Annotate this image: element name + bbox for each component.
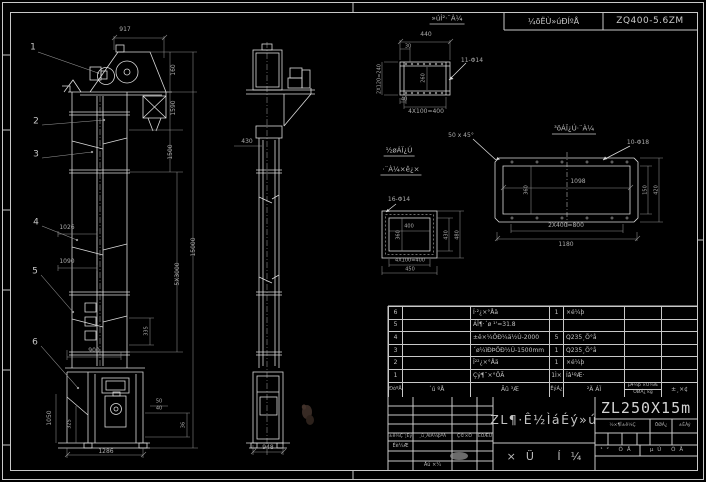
bom-cell-qty: 1 [549,344,563,357]
ink-smudge [302,404,314,425]
bom-header-code: ´ú ºÅ [402,382,470,397]
bom-cell-qty: 5 [549,331,563,344]
stage-label: ½×¶Î±ê¼Ç [595,419,650,433]
bom-cell-seq: 4 [388,331,402,344]
dim-label: 1026 [59,225,74,231]
sheet-no-label: µÚ ÕÅ [640,445,697,456]
signature-smudge [450,452,468,460]
dim-label: 1098 [570,179,585,185]
detail-flange-long [473,139,638,228]
bom-cell-remark [661,331,697,344]
design-label: Éè¼Æ [388,441,413,451]
bom-cell-code [402,319,470,332]
header-model: ZQ400-5.6ZM [603,12,697,30]
bom-cell-qty: 1 [549,306,563,319]
dim-label: 40 [156,407,162,412]
dim-label: 50 x 45° [448,133,474,139]
bom-cell-material: Íâ¹ºÆ· [563,369,624,382]
bom-cell-weight [624,344,661,357]
dim-label: 1286 [98,449,113,455]
bom-cell-qty [549,319,563,332]
bom-header-weight-bottom: ÖØÁ¿ kg [625,389,661,397]
bom-cell-name: ´ø¼ìÐÞÖÐ½Ú-1500mm [470,344,549,357]
dim-label: 260 [422,73,427,83]
bom-cell-remark [661,344,697,357]
bom-cell-name: ÁÏ¶·´ø ¹'=31.8 [470,319,549,332]
dim-label: 948 [262,445,273,451]
dim-label: 15000 [191,237,197,256]
bom-cell-name: Î²²¿×°Åä [470,356,549,369]
parts-list: 6Í·²¿×°Åä1×é¼þ5ÁÏ¶·´ø ¹'=31.84±ê×¼ÖÐ¼ä½Ú… [388,306,697,397]
dim-label: 360 [525,185,530,195]
weight-label: ÖØÁ¿ [650,419,672,433]
callout-number: 2 [33,118,39,127]
bom-cell-material: Q235¸Ö°å [563,344,624,357]
dim-label: 420 [655,185,660,195]
dim-label: 430 [445,230,450,240]
dim-label: 1180 [558,242,573,248]
bom-cell-remark [661,369,697,382]
dim-label: 335 [145,326,150,336]
bom-cell-seq: 1 [388,369,402,382]
dim-label: 450 [405,268,415,273]
dim-label: 900 [88,348,99,354]
dim-label: 10-Φ18 [627,140,649,146]
bom-cell-code [402,369,470,382]
bom-header-weight-top: µ¥¼þ ×Ü¼Æ [625,383,661,390]
rev-header-mark: ±ê¼Ç´¦Êý [388,433,413,441]
detail-title: ³öÁÏ¿Ú·¨À¼ [552,126,596,135]
bom-cell-name: ±ê×¼ÖÐ¼ä½Ú-2000 [470,331,549,344]
callout-number: 3 [33,151,39,160]
dim-label: 5X3000 [175,262,181,285]
detail-title: »úÍ²·¨À¼ [430,16,465,25]
model-number: ZL250X15m [595,397,697,419]
bom-cell-weight [624,331,661,344]
bom-cell-seq: 5 [388,319,402,332]
dim-label: 4X100=400 [408,109,444,115]
cad-sheet: ¼õËÙ»úÐÍºÅ ZQ400-5.6ZM 12345691716015901… [0,0,706,482]
bom-cell-qty: 1 [549,356,563,369]
centerlines [100,42,267,456]
bom-cell-material: ×é¼þ [563,356,624,369]
side-view [246,44,315,448]
callout-number: 6 [32,339,38,348]
rev-header-docno: ¸ü¸ÄÎÄ¼þºÅ [413,433,452,441]
callout-number: 5 [32,268,38,277]
dim-label: 150 [644,185,649,195]
dim-label: 36 [182,422,187,428]
dim-label: 2X400=800 [548,223,584,229]
bom-cell-name: Çý¶¯×°ÖÃ [470,369,549,382]
dim-label: 1050 [47,410,53,425]
bom-cell-code [402,331,470,344]
bom-cell-weight [624,319,661,332]
dim-label: 430 [241,139,252,145]
detail-title: ½øÁÏ¿Ú [384,148,415,157]
bom-cell-code [402,344,470,357]
bom-cell-remark [661,319,697,332]
bom-cell-name: Í·²¿×°Åä [470,306,549,319]
bom-cell-material: Q235¸Ö°å [563,331,624,344]
bom-header-seq: ÐòºÅ [388,382,402,397]
dim-label: 325 [68,419,73,429]
callout-number: 4 [33,219,39,228]
bom-header-qty: ÊýÁ¿ [549,382,563,397]
dim-label: 917 [119,27,130,33]
dim-label: 4X100=400 [395,259,425,264]
bom-cell-remark [661,306,697,319]
bom-header-weight: µ¥¼þ ×Ü¼ÆÖØÁ¿ kg [624,382,661,397]
dim-label: 440 [420,32,431,38]
drawing-subtitle: ×Ü Í¼ [493,443,595,470]
dim-label: 16-Φ14 [388,197,410,203]
bom-cell-seq: 2 [388,356,402,369]
bom-cell-weight [624,306,661,319]
dim-label: 1090 [59,259,74,265]
bom-cell-material [563,319,624,332]
dim-label: 30 [405,45,411,50]
dim-label: 160 [171,64,177,75]
bom-cell-remark [661,356,697,369]
dim-label: 50 [156,400,162,405]
bom-cell-material: ×é¼þ [563,306,624,319]
bom-cell-code [402,306,470,319]
dim-label: 360 [397,230,402,240]
bom-cell-code [402,356,470,369]
bom-cell-weight [624,356,661,369]
drawing-title: ZL¶·Ê½ÌáÉý»ú [493,397,595,443]
dim-label: 2X120=240 [378,64,383,94]
sheet-total-label: ¹² ÕÅ [595,445,640,456]
bom-cell-weight [624,369,661,382]
dim-label: 480 [456,230,461,240]
scale-label: ±ÈÀý [672,419,697,433]
dim-label: 400 [404,225,414,230]
rev-header-sign: Ç©×Ö [452,433,477,441]
dim-label: 40 [401,98,407,103]
leader-lines [38,52,105,389]
dim-label: 1590 [171,100,177,115]
bom-cell-seq: 3 [388,344,402,357]
approve-label: Åú ×¼ [413,461,452,470]
front-view [58,45,172,448]
bom-header-remark: ±¸×¢ [661,382,697,397]
rev-header-date: ÈÕÆÚ [477,433,493,441]
bom-header-name: Ãû ³Æ [470,382,549,397]
dim-label: 1500 [168,144,174,159]
detail-flange-top [400,62,466,95]
dim-label: 11-Φ14 [461,58,483,64]
bom-header-material: ²Ä ÁÏ [563,382,624,397]
callout-number: 1 [30,44,36,53]
bom-cell-qty: 1Ì× [549,369,563,382]
header-tech-label: ¼õËÙ»úÐÍºÅ [504,12,603,30]
bom-cell-seq: 6 [388,306,402,319]
detail-title: ·¨À¼×ê¿× [380,167,421,176]
